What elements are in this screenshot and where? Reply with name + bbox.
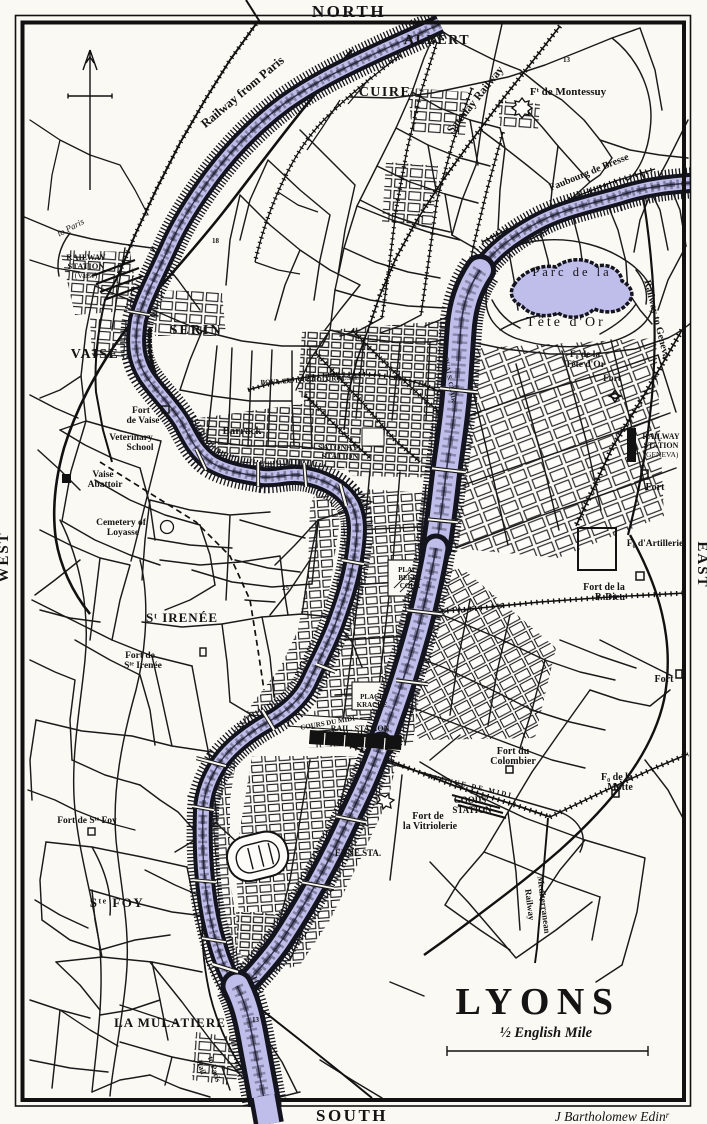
- svg-text:Fort: Fort: [132, 406, 151, 416]
- svg-text:Sᵗᵉ FOY: Sᵗᵉ FOY: [90, 895, 145, 910]
- svg-text:STATION: STATION: [644, 441, 679, 450]
- svg-text:EAST: EAST: [694, 541, 707, 588]
- svg-text:Tête d'Or: Tête d'Or: [526, 315, 606, 330]
- svg-text:STATION: STATION: [321, 451, 359, 461]
- svg-text:13: 13: [563, 56, 571, 64]
- svg-text:BELLE: BELLE: [398, 574, 422, 582]
- svg-text:Fort: Fort: [603, 374, 622, 384]
- svg-text:(Vaise): (Vaise): [75, 271, 98, 280]
- svg-text:NORTH: NORTH: [312, 2, 386, 21]
- svg-text:P. Dieu: P. Dieu: [595, 592, 626, 603]
- svg-text:Tête d'Or: Tête d'Or: [565, 360, 606, 370]
- svg-text:Veterinary: Veterinary: [109, 433, 153, 443]
- svg-text:F₀ de la: F₀ de la: [570, 350, 601, 360]
- svg-text:Fort de: Fort de: [125, 651, 155, 661]
- svg-text:GOODS: GOODS: [454, 795, 487, 805]
- svg-text:CUIRE: CUIRE: [359, 85, 412, 100]
- svg-text:Motte: Motte: [607, 782, 633, 793]
- svg-text:SOUTH: SOUTH: [316, 1106, 388, 1124]
- svg-text:Fort: Fort: [646, 482, 666, 493]
- svg-text:STATION: STATION: [452, 805, 492, 815]
- svg-text:la Vitriolerie: la Vitriolerie: [403, 821, 458, 832]
- svg-text:Loyasse: Loyasse: [107, 528, 139, 538]
- svg-text:Fort de Sᵗᵉ Foy: Fort de Sᵗᵉ Foy: [57, 816, 117, 826]
- svg-text:Abattoir: Abattoir: [88, 480, 124, 490]
- svg-text:Sᵗ IRENÉE: Sᵗ IRENÉE: [146, 610, 218, 625]
- svg-text:PLACE: PLACE: [398, 566, 422, 574]
- svg-text:LA MULATIERE: LA MULATIERE: [114, 1015, 226, 1030]
- svg-text:25: 25: [282, 584, 290, 592]
- svg-text:Parc de la: Parc de la: [532, 265, 611, 279]
- svg-text:RAIL. STATION: RAIL. STATION: [331, 724, 390, 733]
- svg-text:Vaise: Vaise: [92, 470, 113, 480]
- svg-text:WEST: WEST: [0, 531, 12, 582]
- svg-text:ENNE STA.: ENNE STA.: [335, 848, 381, 858]
- svg-text:Fᵗ de Montessuy: Fᵗ de Montessuy: [530, 86, 607, 98]
- svg-text:STATION: STATION: [67, 261, 105, 271]
- svg-text:18: 18: [212, 237, 220, 245]
- svg-text:Sᵗᵉ Irenée: Sᵗᵉ Irenée: [124, 661, 162, 671]
- svg-text:Colombier: Colombier: [490, 756, 536, 767]
- svg-text:Cemetery of: Cemetery of: [96, 518, 147, 528]
- svg-text:COUR: COUR: [400, 582, 422, 590]
- svg-text:(GENEVA): (GENEVA): [644, 450, 679, 459]
- svg-text:de Vaise: de Vaise: [127, 416, 160, 426]
- svg-text:ALBERT: ALBERT: [404, 33, 470, 48]
- svg-text:½ English Mile: ½ English Mile: [500, 1025, 593, 1041]
- svg-text:RAILWAY: RAILWAY: [642, 432, 679, 441]
- svg-text:VAISE: VAISE: [71, 347, 120, 362]
- svg-text:PLACE: PLACE: [360, 693, 384, 701]
- svg-text:Fort: Fort: [655, 674, 675, 685]
- svg-text:SERIN: SERIN: [170, 323, 223, 338]
- svg-text:School: School: [127, 443, 154, 453]
- svg-text:J Bartholomew Edinr: J Bartholomew Edinr: [555, 1109, 670, 1124]
- svg-text:LYONS: LYONS: [456, 981, 621, 1023]
- svg-text:13: 13: [252, 1016, 260, 1024]
- svg-text:KRACHE: KRACHE: [357, 701, 388, 709]
- svg-text:Barrack: Barrack: [222, 425, 262, 437]
- svg-text:F₀ d'Artillerie: F₀ d'Artillerie: [627, 539, 683, 549]
